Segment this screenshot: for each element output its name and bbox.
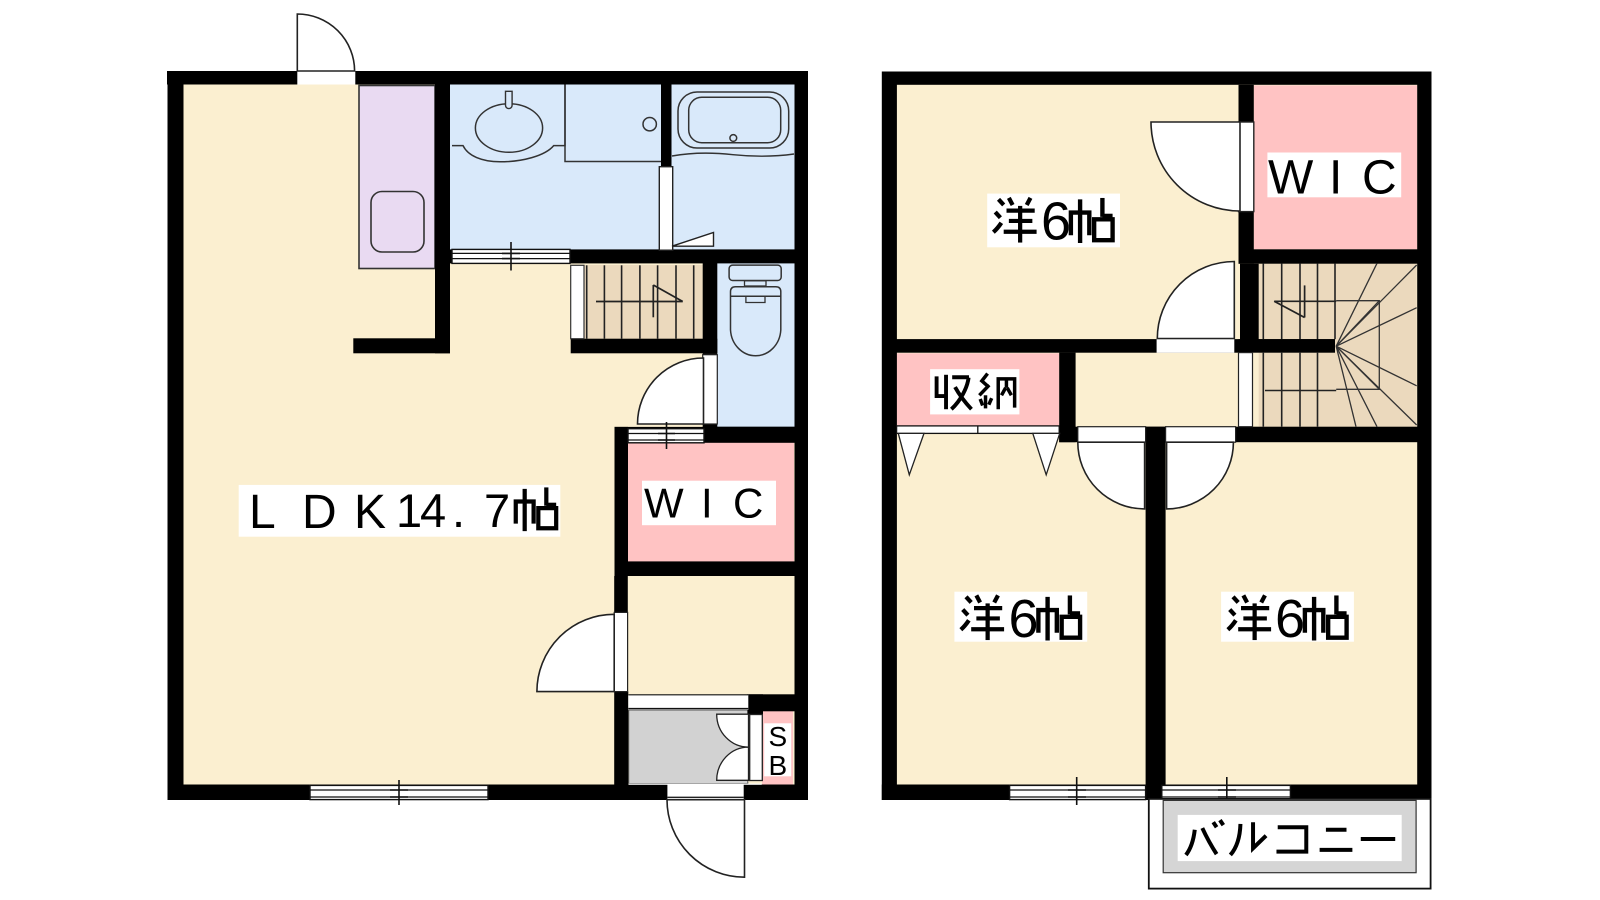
svg-text:S: S — [769, 721, 788, 752]
svg-text:W: W — [644, 480, 684, 527]
svg-text:C: C — [1362, 152, 1397, 205]
svg-text:K: K — [354, 486, 386, 539]
svg-text:W: W — [1268, 152, 1314, 205]
svg-text:6: 6 — [1275, 589, 1305, 649]
svg-text:I: I — [1329, 152, 1342, 205]
svg-text:I: I — [701, 480, 713, 527]
svg-text:B: B — [769, 750, 788, 781]
svg-text:1: 1 — [396, 484, 422, 537]
svg-text:D: D — [302, 486, 337, 539]
svg-text:.: . — [452, 484, 465, 537]
svg-text:L: L — [249, 486, 276, 539]
svg-text:6: 6 — [1041, 192, 1071, 252]
svg-text:7: 7 — [484, 484, 510, 537]
svg-text:6: 6 — [1009, 589, 1039, 649]
svg-text:C: C — [733, 480, 763, 527]
svg-text:4: 4 — [420, 484, 446, 537]
